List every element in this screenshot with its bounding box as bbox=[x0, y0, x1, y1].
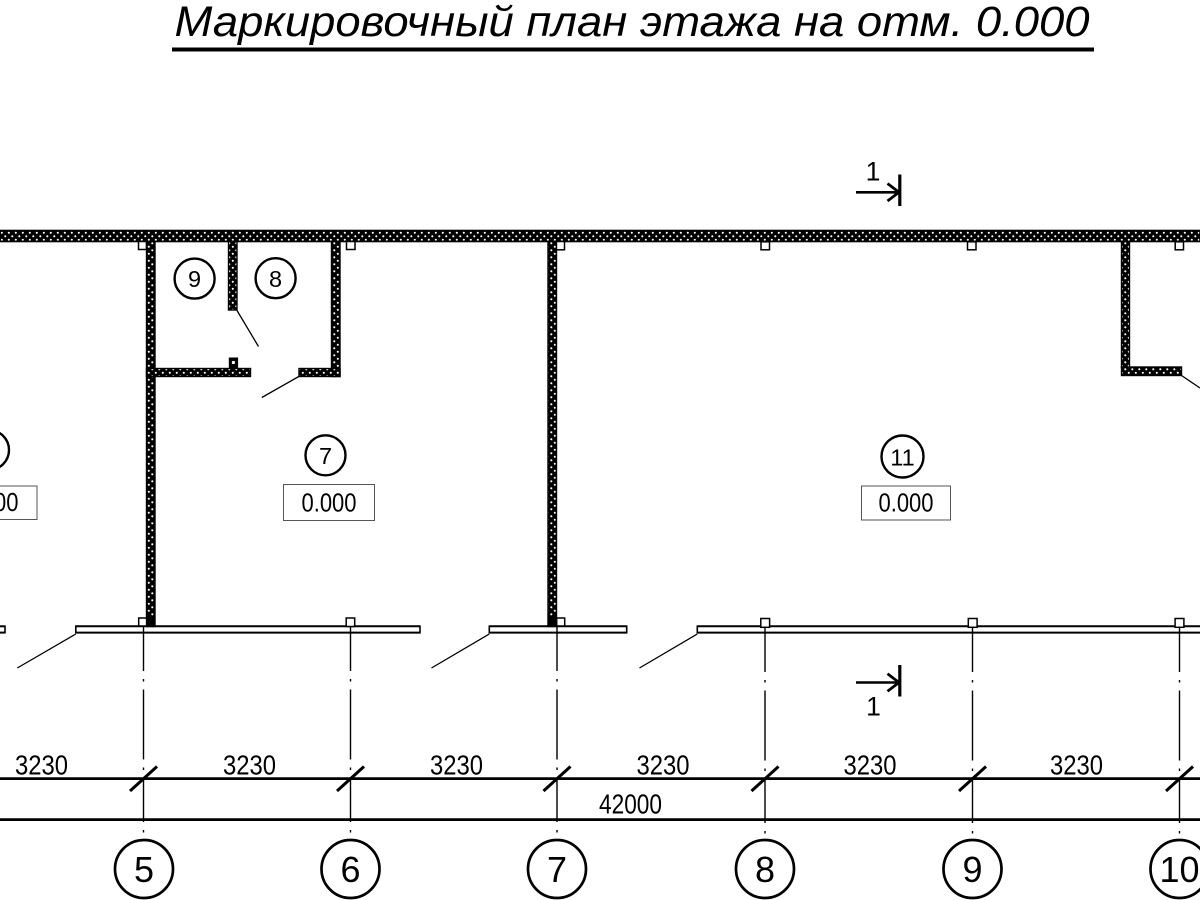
svg-text:8: 8 bbox=[269, 266, 282, 292]
svg-text:3230: 3230 bbox=[637, 750, 690, 781]
svg-text:1: 1 bbox=[866, 692, 881, 722]
svg-text:9: 9 bbox=[962, 849, 982, 890]
svg-text:7: 7 bbox=[319, 443, 332, 469]
svg-text:8: 8 bbox=[755, 849, 775, 890]
svg-text:Маркировочный план этажа на от: Маркировочный план этажа на отм. 0.000 bbox=[175, 0, 1090, 46]
svg-text:7: 7 bbox=[547, 849, 567, 890]
svg-text:0.000: 0.000 bbox=[0, 489, 19, 517]
svg-text:9: 9 bbox=[188, 266, 201, 292]
svg-text:42000: 42000 bbox=[599, 789, 662, 820]
svg-text:3230: 3230 bbox=[15, 750, 68, 781]
svg-text:5: 5 bbox=[134, 849, 154, 890]
svg-text:10: 10 bbox=[1159, 849, 1199, 890]
svg-text:3230: 3230 bbox=[1050, 750, 1103, 781]
svg-text:3230: 3230 bbox=[430, 750, 483, 781]
svg-text:0.000: 0.000 bbox=[302, 490, 357, 518]
svg-text:3230: 3230 bbox=[223, 750, 276, 781]
svg-text:0.000: 0.000 bbox=[879, 489, 934, 517]
svg-text:11: 11 bbox=[890, 444, 914, 470]
svg-text:6: 6 bbox=[340, 849, 360, 890]
svg-text:1: 1 bbox=[866, 157, 881, 187]
svg-text:3230: 3230 bbox=[844, 750, 897, 781]
